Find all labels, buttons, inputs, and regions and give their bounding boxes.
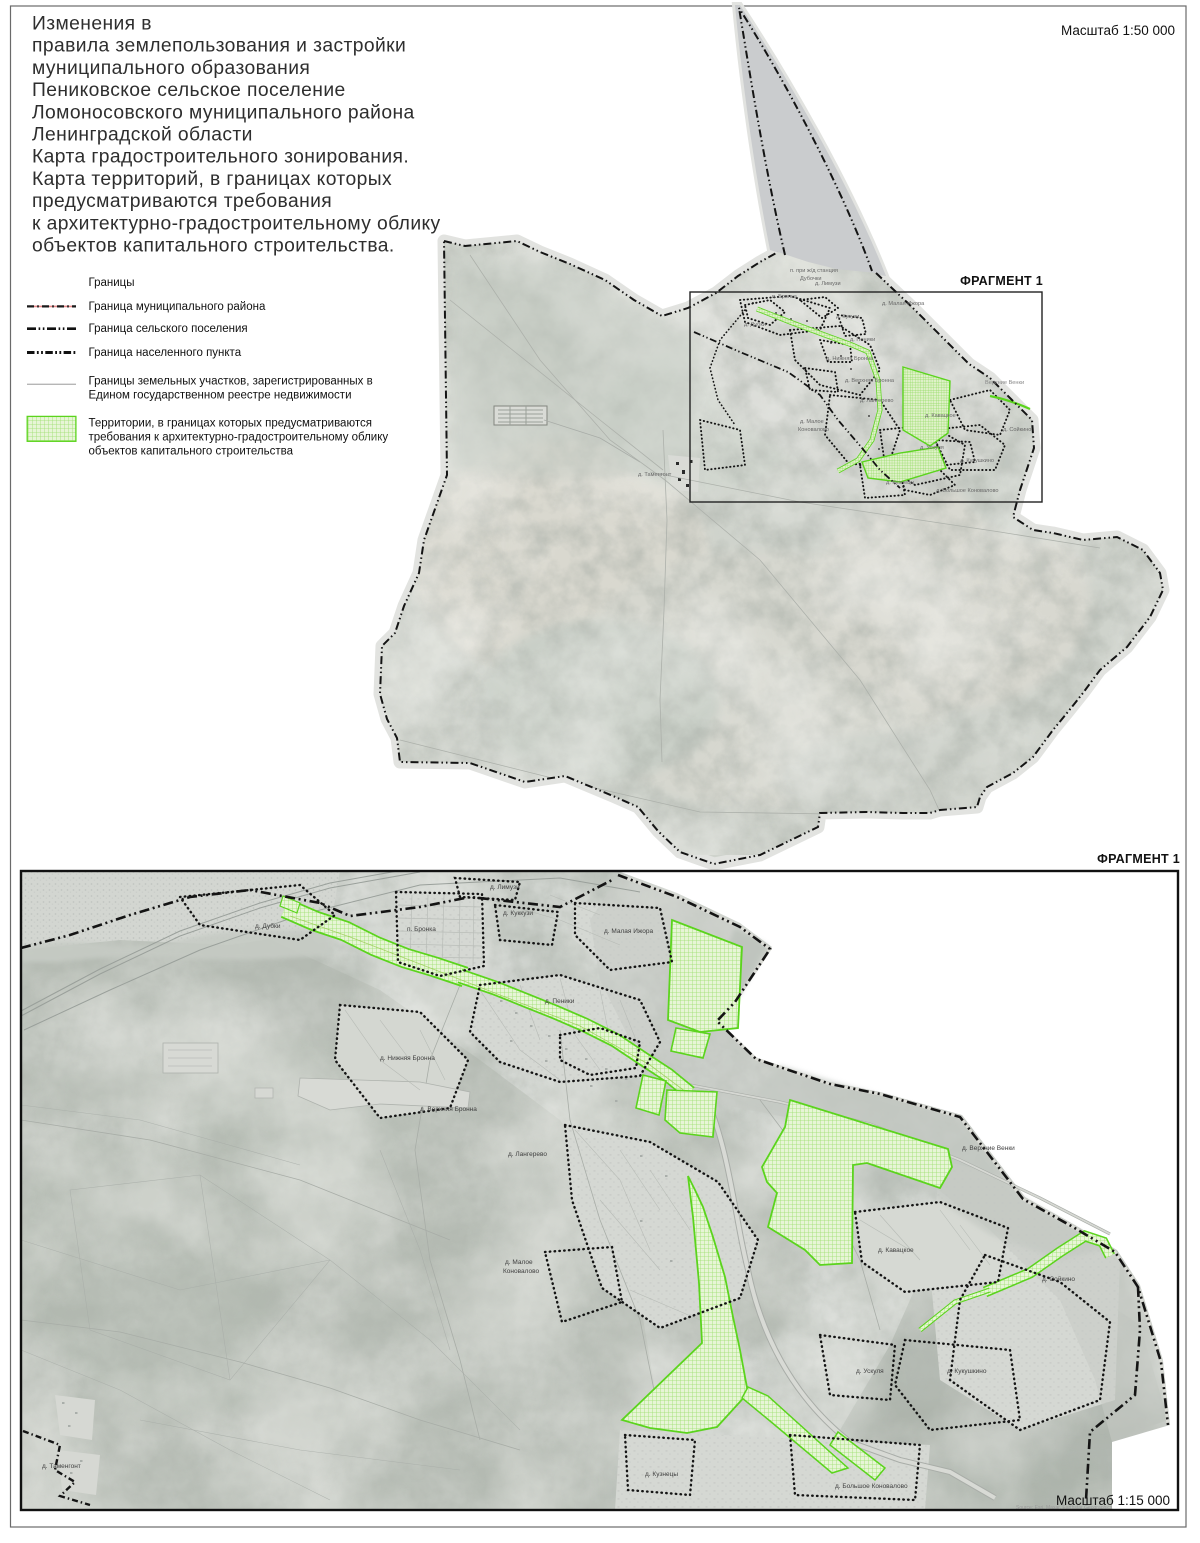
svg-text:д. Куккузи: д. Куккузи [503,910,533,917]
svg-text:п. Бронка: п. Бронка [407,926,436,933]
svg-text:д. Кузнецы: д. Кузнецы [886,480,914,486]
svg-text:д. Малая Ижора: д. Малая Ижора [604,928,653,935]
svg-text:требования к архитектурно-град: требования к архитектурно-градостроитель… [89,432,389,444]
svg-text:п. при ж/д станция: п. при ж/д станция [790,268,838,274]
svg-text:д. Дубки: д. Дубки [255,922,281,930]
svg-text:Ленинградской области: Ленинградской области [32,125,253,146]
svg-text:Масштаб 1:50 000: Масштаб 1:50 000 [1061,23,1175,38]
svg-text:д. Лангерево: д. Лангерево [860,398,894,404]
svg-text:д. Кавацкое: д. Кавацкое [878,1247,914,1254]
svg-text:предусматриваются требования: предусматриваются требования [32,191,332,212]
svg-text:к архитектурно-градостроительн: к архитектурно-градостроительному облику [32,213,441,234]
svg-text:ФРАГМЕНТ 1: ФРАГМЕНТ 1 [960,274,1043,288]
svg-text:д. Таменгонт: д. Таменгонт [42,1463,81,1470]
svg-text:Граница сельского поселения: Граница сельского поселения [89,323,248,335]
svg-text:д. Пеники: д. Пеники [545,998,575,1005]
svg-text:Масштаб 1:15 000: Масштаб 1:15 000 [1056,1493,1170,1508]
svg-text:д. Верхние Венки: д. Верхние Венки [962,1145,1015,1152]
svg-text:Коновалово: Коновалово [503,1268,539,1275]
svg-text:Коновалово: Коновалово [798,427,829,433]
svg-text:объектов капитального строител: объектов капитального строительства. [32,236,395,257]
svg-text:Границы: Границы [89,277,135,289]
svg-text:муниципального образования: муниципального образования [32,58,310,79]
svg-text:д. Дубки: д. Дубки [744,322,766,328]
svg-text:д. Лимузи: д. Лимузи [490,884,520,891]
svg-text:д. Нижняя Бронна: д. Нижняя Бронна [826,356,874,362]
svg-text:д. Ускуля: д. Ускуля [856,1368,884,1375]
svg-text:д. Нижняя Бронна: д. Нижняя Бронна [380,1055,435,1062]
svg-text:д. Кавацкое: д. Кавацкое [925,413,956,419]
svg-text:д. Малая Ижора: д. Малая Ижора [882,301,925,307]
svg-text:д. Лимузи: д. Лимузи [815,281,841,287]
svg-text:Изменения в: Изменения в [32,14,152,35]
svg-text:Карта градостроительного зонир: Карта градостроительного зонирования. [32,147,409,168]
svg-text:Граница населенного пункта: Граница населенного пункта [89,347,242,359]
svg-text:д. Малое: д. Малое [505,1259,533,1266]
svg-text:Едином государственном реестре: Едином государственном реестре недвижимо… [89,390,352,402]
svg-text:д. Кузнецы: д. Кузнецы [645,1471,678,1478]
svg-text:Карта территорий, в границах к: Карта территорий, в границах которых [32,169,392,190]
svg-text:правила землепользования и зас: правила землепользования и застройки [32,36,406,57]
svg-text:д. Пеники: д. Пеники [850,337,875,343]
svg-text:д. Кукузи: д. Кукузи [836,314,859,320]
svg-text:объектов капитального строител: объектов капитального строительства [89,446,294,458]
svg-text:д. Верхняя Бронна: д. Верхняя Бронна [845,378,895,384]
svg-text:д. Верхняя Бронна: д. Верхняя Бронна [420,1106,477,1113]
svg-text:д. Кукушкино: д. Кукушкино [947,1368,987,1375]
svg-text:д. Сойкино: д. Сойкино [1042,1275,1075,1283]
svg-text:Пениковское сельское поселение: Пениковское сельское поселение [32,80,346,101]
svg-text:Верхние Венки: Верхние Венки [985,380,1024,386]
svg-text:Территории, в границах которых: Территории, в границах которых предусмат… [89,418,372,430]
svg-text:д. Ускуля: д. Ускуля [920,445,944,451]
svg-text:Граница муниципального района: Граница муниципального района [89,301,266,313]
svg-text:Границы земельных участков, за: Границы земельных участков, зарегистриро… [89,376,373,388]
svg-text:д. Таменгонт: д. Таменгонт [638,472,672,478]
svg-text:д. Сойкино: д. Сойкино [1003,426,1031,433]
svg-text:д. Кукушкино: д. Кукушкино [960,458,994,464]
svg-text:Ломоносовского муниципального: Ломоносовского муниципального района [32,102,415,123]
svg-text:ФРАГМЕНТ 1: ФРАГМЕНТ 1 [1097,852,1180,866]
svg-text:п. Бронка: п. Бронка [772,294,798,300]
svg-text:д. Лангерево: д. Лангерево [508,1151,547,1158]
svg-text:д. Малое: д. Малое [800,419,824,425]
svg-text:д. Большое Коновалово: д. Большое Коновалово [835,1483,908,1490]
svg-text:д. Большое Коновалово: д. Большое Коновалово [936,488,999,494]
